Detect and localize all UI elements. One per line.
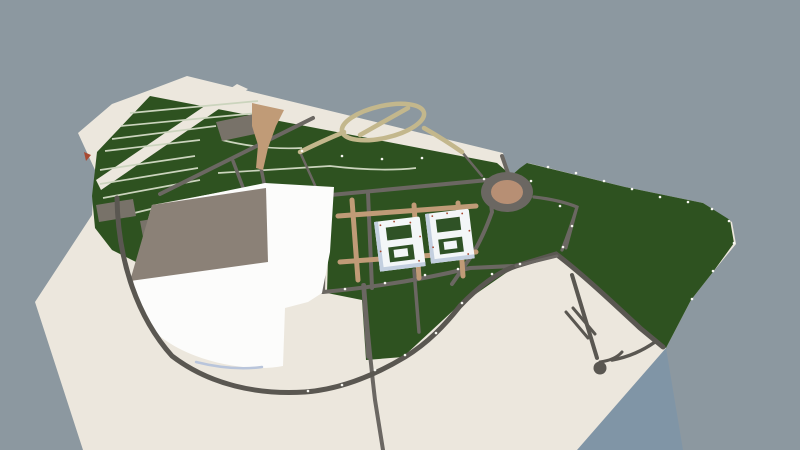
cul-de-sac-circle	[594, 362, 607, 375]
building-b-inner-wing	[444, 240, 458, 250]
building-a-inner-wing	[394, 248, 409, 258]
courtyard-building-b	[425, 209, 475, 264]
roundabout-center	[491, 180, 523, 204]
viewport-3d[interactable]: 3D aerial view of a landscaped site-plan…	[0, 0, 800, 450]
site-plan-canvas[interactable]: 3D aerial view of a landscaped site-plan…	[0, 0, 800, 450]
courtyard-building-a	[374, 216, 426, 271]
